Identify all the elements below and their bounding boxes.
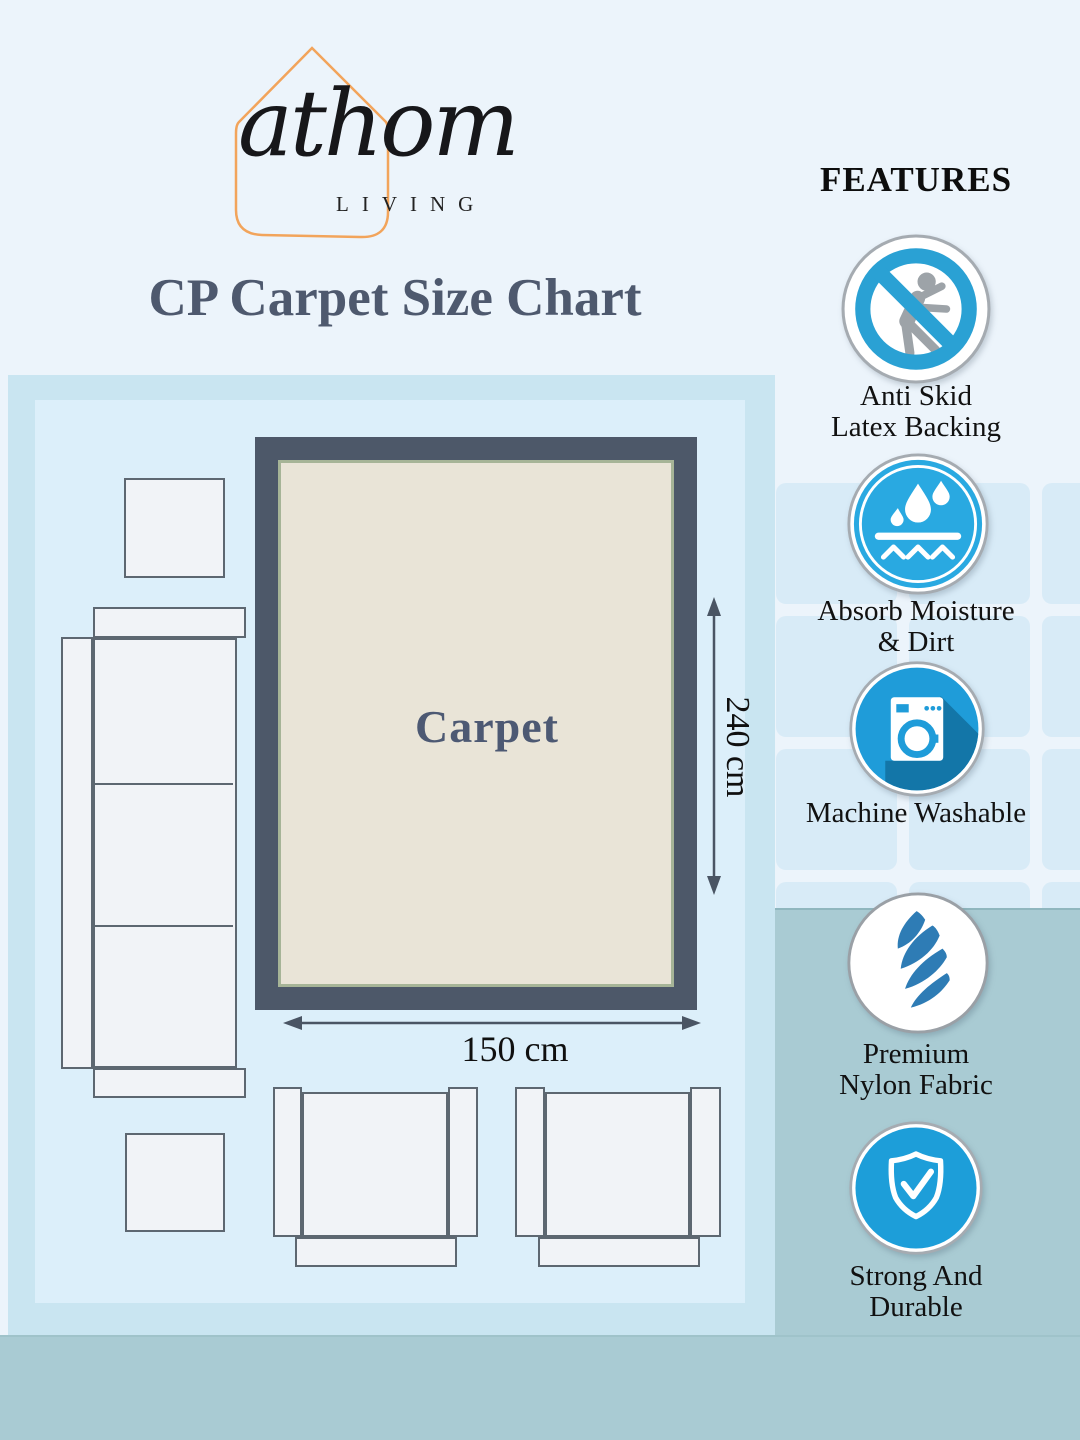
feature-label-strong-durable: Strong And Durable [756,1261,1076,1323]
feature-label-absorb: Absorb Moisture & Dirt [756,596,1076,658]
machine-washable-icon [848,660,986,798]
brand-subtitle: LIVING [336,192,486,217]
infographic-page: athom LIVING CP Carpet Size Chart Carpet… [0,0,1080,1440]
feature-line: Durable [756,1292,1076,1323]
page-bottom-band [0,1335,1080,1440]
feature-line: Anti Skid [756,381,1076,412]
feature-line: Nylon Fabric [756,1070,1076,1101]
feature-line: Machine Washable [756,798,1076,829]
feature-label-premium-nylon: Premium Nylon Fabric [756,1039,1076,1101]
feature-line: Premium [756,1039,1076,1070]
premium-nylon-icon [846,891,990,1035]
carpet-height-label: 240 cm [718,687,756,807]
armchair1-armrest-left [273,1087,302,1237]
sofa-cushion-divider [93,925,233,927]
feature-line: Strong And [756,1261,1076,1292]
carpet-label: Carpet [337,700,637,753]
armchair1-armrest-right [448,1087,478,1237]
armchair1-seat [302,1092,448,1237]
armchair1-front-cushion [295,1237,457,1267]
feature-line: Absorb Moisture [756,596,1076,627]
strong-durable-icon [848,1120,984,1256]
feature-line: Latex Backing [756,412,1076,443]
side-table-bottom [125,1133,225,1232]
side-table-top [124,478,225,578]
anti-skid-icon [840,233,992,385]
feature-label-anti-skid: Anti Skid Latex Backing [756,381,1076,443]
sofa-armrest-bottom [93,1068,246,1098]
feature-line: & Dirt [756,627,1076,658]
page-title: CP Carpet Size Chart [0,268,790,328]
sofa-cushion-divider [93,783,233,785]
absorb-moisture-icon [846,452,990,596]
sofa-armrest-top [93,607,246,638]
brand-name: athom [238,78,578,170]
room-plan-panel [8,375,775,1335]
armchair2-armrest-right [690,1087,721,1237]
armchair2-seat [545,1092,690,1237]
carpet-width-label: 150 cm [415,1028,615,1070]
feature-label-machine-washable: Machine Washable [756,798,1076,829]
armchair2-front-cushion [538,1237,700,1267]
sofa-backrest [61,637,93,1069]
tile [1042,483,1080,604]
sofa-body [93,638,237,1068]
features-heading: FEATURES [766,160,1066,200]
armchair2-armrest-left [515,1087,545,1237]
